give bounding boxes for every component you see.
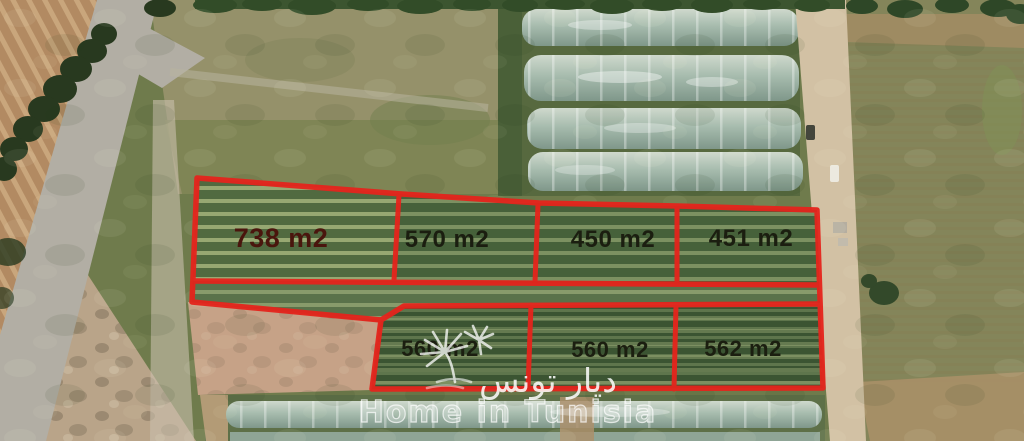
- plot-area-label-560b: 560 m2: [571, 337, 649, 362]
- plot-area-label-450: 450 m2: [571, 226, 655, 253]
- divider-570-450: [535, 204, 538, 282]
- plot-area-label-451: 451 m2: [709, 225, 793, 252]
- divider-560-562: [674, 305, 676, 389]
- satellite-screenshot: 738 m2 570 m2 450 m2 451 m2 560 m2 560 m…: [0, 0, 1024, 441]
- satellite-image: 738 m2 570 m2 450 m2 451 m2 560 m2 560 m…: [0, 0, 1024, 441]
- plot-area-label-570: 570 m2: [405, 226, 489, 253]
- plot-area-label-562: 562 m2: [704, 336, 782, 361]
- plot-area-label-738: 738 m2: [234, 223, 329, 253]
- watermark-english-text: Home in Tunisia: [359, 395, 657, 430]
